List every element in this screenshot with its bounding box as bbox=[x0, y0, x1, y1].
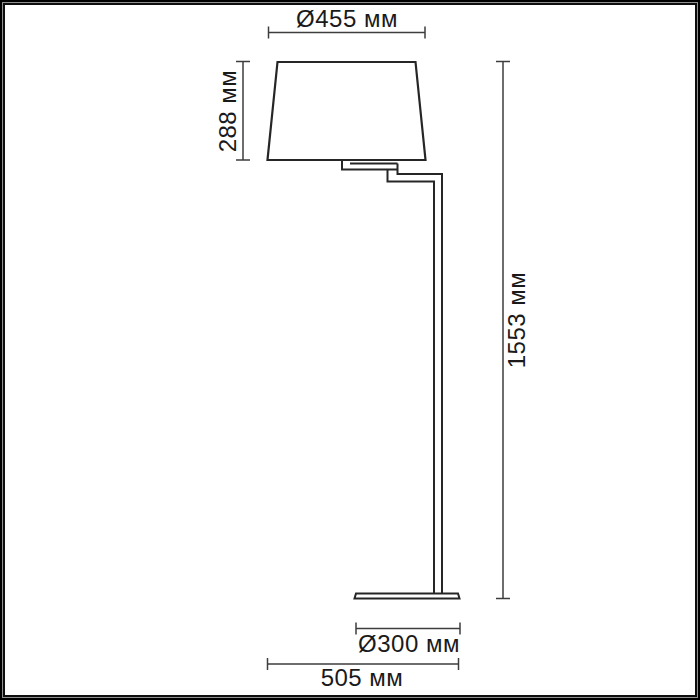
lamp-line-drawing bbox=[0, 0, 700, 700]
lamp-base-plate bbox=[355, 594, 460, 599]
dim-label-shade-height: 288 мм bbox=[215, 51, 241, 171]
dim-label-overall-width: 505 мм bbox=[262, 665, 462, 691]
swing-arm-lower-plate-and-pole-left-edge bbox=[388, 170, 435, 594]
swing-arm-step-and-pole-right-edge bbox=[398, 164, 443, 594]
dim-label-base-diameter: Ø300 мм bbox=[309, 631, 509, 657]
swing-arm-upper-plate bbox=[342, 160, 398, 170]
dim-label-total-height: 1553 мм bbox=[504, 250, 530, 390]
dimension-drawing-canvas: Ø455 мм 288 мм 1553 мм Ø300 мм 505 мм bbox=[0, 0, 700, 700]
dim-label-shade-diameter: Ø455 мм bbox=[247, 6, 447, 32]
lampshade-outline bbox=[268, 62, 426, 160]
